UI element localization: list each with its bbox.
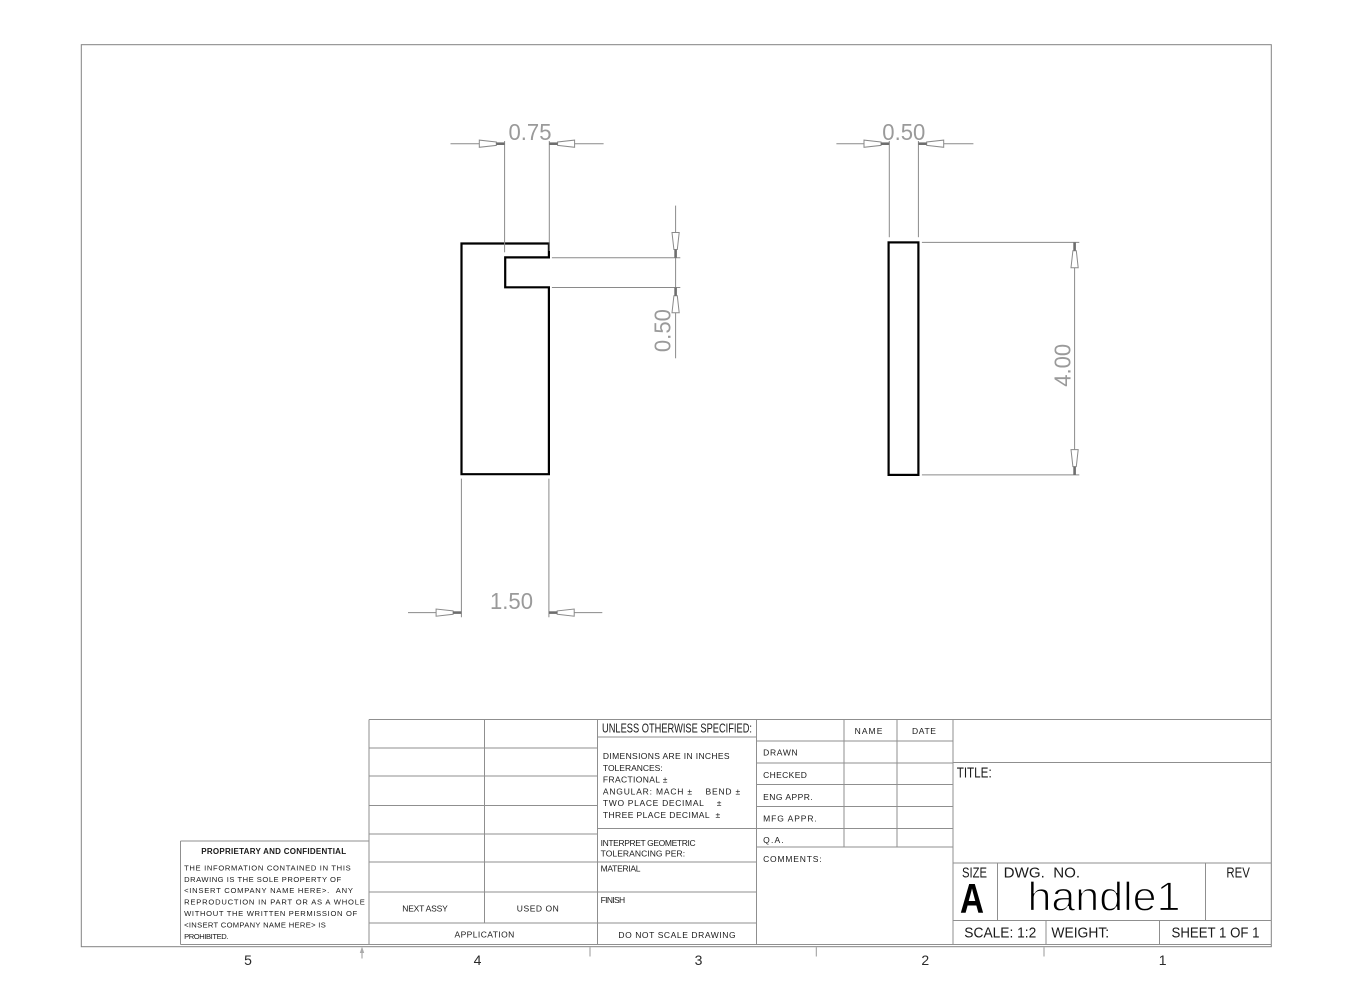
svg-text:DRAWING IS THE SOLE PROPERTY O: DRAWING IS THE SOLE PROPERTY OF [184,875,341,884]
svg-text:REPRODUCTION IN PART OR AS A W: REPRODUCTION IN PART OR AS A WHOLE [184,898,365,907]
svg-text:TOLERANCES:: TOLERANCES: [603,763,663,773]
svg-text:INTERPRET GEOMETRIC: INTERPRET GEOMETRIC [601,838,696,848]
svg-text:COMMENTS:: COMMENTS: [763,854,822,864]
svg-text:NAME: NAME [855,726,883,736]
svg-text:0.50: 0.50 [882,119,925,145]
svg-text:DIMENSIONS ARE IN INCHES: DIMENSIONS ARE IN INCHES [603,751,730,761]
svg-text:0.75: 0.75 [509,119,552,145]
svg-text:FRACTIONAL ±: FRACTIONAL ± [603,775,668,785]
svg-text:4: 4 [474,952,482,968]
svg-text:WEIGHT:: WEIGHT: [1051,925,1109,941]
svg-text:CHECKED: CHECKED [763,770,807,780]
svg-text:TOLERANCING PER:: TOLERANCING PER: [601,848,686,858]
svg-text:1.50: 1.50 [490,588,533,614]
svg-text:APPLICATION: APPLICATION [455,930,515,940]
svg-text:handle1: handle1 [1028,874,1181,920]
svg-text:THE INFORMATION CONTAINED IN T: THE INFORMATION CONTAINED IN THIS [184,863,351,872]
svg-text:MFG APPR.: MFG APPR. [763,814,817,824]
svg-text:DATE: DATE [912,726,936,736]
svg-text:FINISH: FINISH [601,895,626,905]
svg-text:THREE PLACE DECIMAL ±: THREE PLACE DECIMAL ± [603,810,721,820]
svg-text:5: 5 [244,952,252,968]
svg-text:SHEET 1 OF 1: SHEET 1 OF 1 [1172,925,1260,941]
svg-text:DRAWN: DRAWN [763,748,798,758]
svg-text:PROPRIETARY AND CONFIDENTIAL: PROPRIETARY AND CONFIDENTIAL [201,847,346,856]
svg-text:PROHIBITED.: PROHIBITED. [184,932,228,941]
svg-text:USED ON: USED ON [517,904,559,914]
svg-text:ANGULAR: MACH ± BEND ±: ANGULAR: MACH ± BEND ± [603,786,741,796]
svg-text:DO NOT SCALE DRAWING: DO NOT SCALE DRAWING [618,930,735,940]
svg-text:ENG APPR.: ENG APPR. [763,792,813,802]
svg-text:NEXT ASSY: NEXT ASSY [402,904,448,914]
svg-text:WITHOUT THE WRITTEN PERMISSION: WITHOUT THE WRITTEN PERMISSION OF [184,909,357,918]
svg-text:SCALE: 1:2: SCALE: 1:2 [964,925,1036,941]
svg-text:TWO PLACE DECIMAL ±: TWO PLACE DECIMAL ± [603,798,722,808]
svg-text:4.00: 4.00 [1049,344,1075,387]
svg-text:1: 1 [1159,952,1167,968]
svg-text:0.50: 0.50 [650,309,676,352]
svg-text:3: 3 [695,952,703,968]
svg-text:TITLE:: TITLE: [957,766,992,782]
svg-text:MATERIAL: MATERIAL [601,864,641,874]
svg-text:UNLESS OTHERWISE SPECIFIED:: UNLESS OTHERWISE SPECIFIED: [602,722,752,736]
svg-text:<INSERT COMPANY NAME HERE>. A: <INSERT COMPANY NAME HERE>. ANY [184,886,353,895]
svg-text:REV: REV [1226,866,1250,882]
svg-text:A: A [960,875,984,922]
svg-text:<INSERT COMPANY NAME HERE> IS: <INSERT COMPANY NAME HERE> IS [184,921,326,930]
svg-text:2: 2 [921,952,929,968]
